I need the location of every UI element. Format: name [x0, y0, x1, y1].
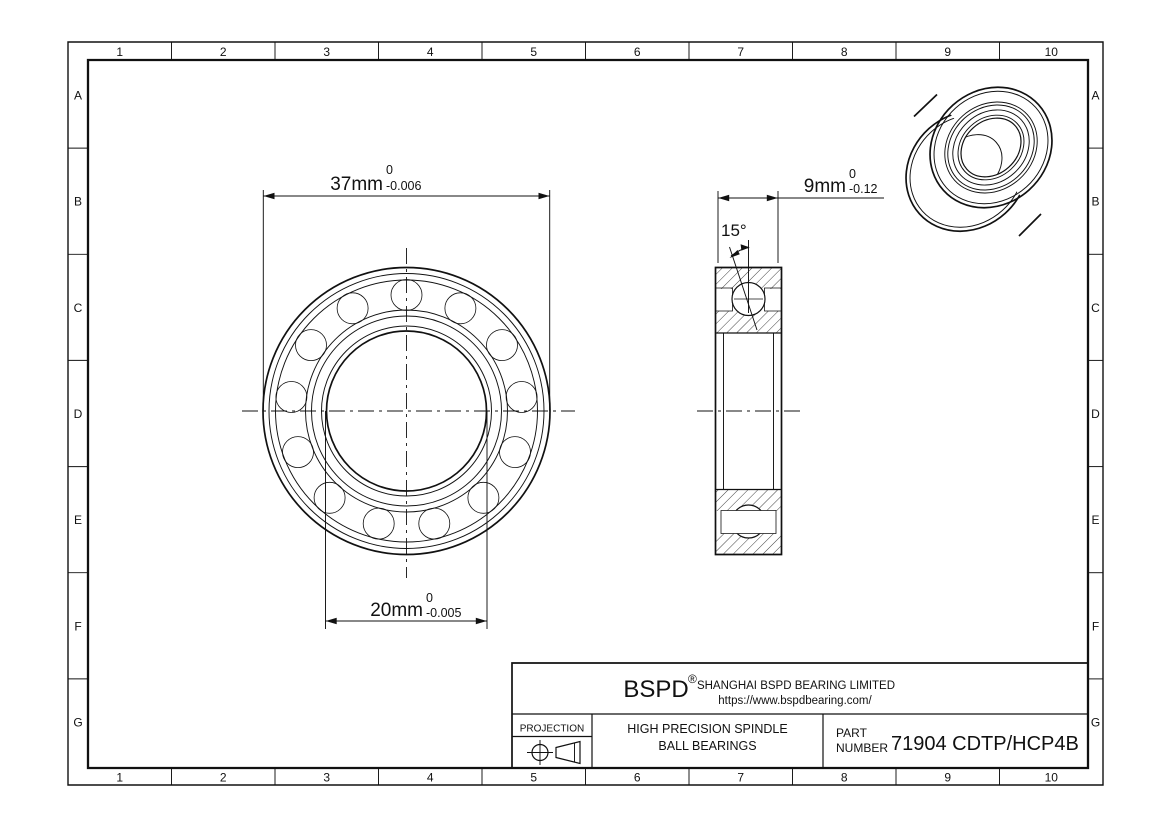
column-label: 6 — [634, 45, 641, 59]
row-label: E — [1091, 513, 1099, 527]
part-label-line1: PART — [836, 726, 868, 740]
section-view-bearing — [697, 268, 801, 555]
row-label: A — [1091, 89, 1099, 103]
frame-row-labels-left: A B C D E F G — [73, 89, 82, 730]
drawing-sheet: 1 2 3 4 5 6 7 8 9 10 1 2 3 4 5 6 7 8 9 1… — [0, 0, 1170, 827]
brand-logo-text: BSPD — [623, 676, 688, 703]
row-label: F — [74, 619, 81, 633]
frame-column-dividers — [172, 42, 1000, 785]
column-label: 10 — [1045, 45, 1059, 59]
od-tol-upper: 0 — [386, 163, 393, 177]
frame-row-dividers — [68, 148, 1103, 679]
row-label: G — [1091, 715, 1100, 729]
company-name: SHANGHAI BSPD BEARING LIMITED — [697, 680, 895, 692]
projection-label: PROJECTION — [520, 724, 584, 735]
row-label: B — [1091, 195, 1099, 209]
iso-bore-inside — [930, 123, 1014, 206]
row-label: D — [74, 407, 83, 421]
part-label-line2: NUMBER — [836, 741, 888, 755]
column-label: 7 — [737, 771, 744, 785]
frame-row-labels-right: A B C D E F G — [1091, 89, 1100, 730]
od-value: 37mm — [330, 174, 383, 195]
width-tol-lower: -0.12 — [849, 182, 878, 196]
column-label: 2 — [220, 45, 227, 59]
width-tol-upper: 0 — [849, 167, 856, 181]
iso-bore-chamfer — [945, 102, 1037, 193]
row-label: C — [74, 301, 83, 315]
part-number-value: 71904 CDTP/HCP4B — [891, 733, 1079, 755]
column-label: 1 — [116, 45, 123, 59]
bore-tol-upper: 0 — [426, 591, 433, 605]
column-label: 5 — [530, 771, 537, 785]
column-label: 8 — [841, 771, 848, 785]
column-label: 5 — [530, 45, 537, 59]
column-label: 3 — [323, 45, 330, 59]
column-label: 9 — [944, 771, 951, 785]
cage-section-top-left — [716, 288, 733, 311]
od-tol-lower: -0.006 — [386, 179, 421, 193]
cage-section-top-right — [765, 288, 782, 311]
iso-face-outer — [905, 62, 1076, 232]
iso-face-chamfer — [911, 68, 1071, 227]
row-label: G — [73, 715, 82, 729]
frame-column-labels-bottom: 1 2 3 4 5 6 7 8 9 10 — [116, 771, 1058, 785]
registered-trademark: ® — [688, 672, 697, 686]
row-label: A — [74, 89, 82, 103]
column-label: 6 — [634, 771, 641, 785]
front-view-bearing — [242, 248, 575, 578]
iso-tangent-top — [914, 95, 937, 117]
column-label: 9 — [944, 45, 951, 59]
frame-column-labels-top: 1 2 3 4 5 6 7 8 9 10 — [116, 45, 1058, 59]
column-label: 3 — [323, 771, 330, 785]
bore-value: 20mm — [370, 600, 423, 621]
row-label: F — [1092, 619, 1099, 633]
column-label: 4 — [427, 45, 434, 59]
third-angle-projection-icon — [527, 740, 580, 765]
row-label: C — [1091, 301, 1100, 315]
column-label: 2 — [220, 771, 227, 785]
isometric-view-bearing — [881, 62, 1076, 256]
bore-tol-lower: -0.005 — [426, 606, 461, 620]
column-label: 10 — [1045, 771, 1059, 785]
product-title-line2: BALL BEARINGS — [658, 739, 756, 753]
column-label: 8 — [841, 45, 848, 59]
contact-angle-value: 15° — [721, 221, 747, 240]
row-label: E — [74, 513, 82, 527]
frame-inner-border — [88, 60, 1088, 768]
column-label: 1 — [116, 771, 123, 785]
product-title-line1: HIGH PRECISION SPINDLE — [627, 722, 787, 736]
width-value: 9mm — [804, 176, 846, 197]
engineering-drawing-canvas: 1 2 3 4 5 6 7 8 9 10 1 2 3 4 5 6 7 8 9 1… — [0, 0, 1170, 827]
company-website: https://www.bspdbearing.com/ — [718, 695, 872, 707]
cage-bottom-bg — [721, 511, 776, 534]
row-label: B — [74, 195, 82, 209]
column-label: 7 — [737, 45, 744, 59]
column-label: 4 — [427, 771, 434, 785]
title-block: BSPD ® SHANGHAI BSPD BEARING LIMITED htt… — [512, 663, 1088, 768]
row-label: D — [1091, 407, 1100, 421]
iso-tangent-bottom — [1019, 214, 1041, 236]
